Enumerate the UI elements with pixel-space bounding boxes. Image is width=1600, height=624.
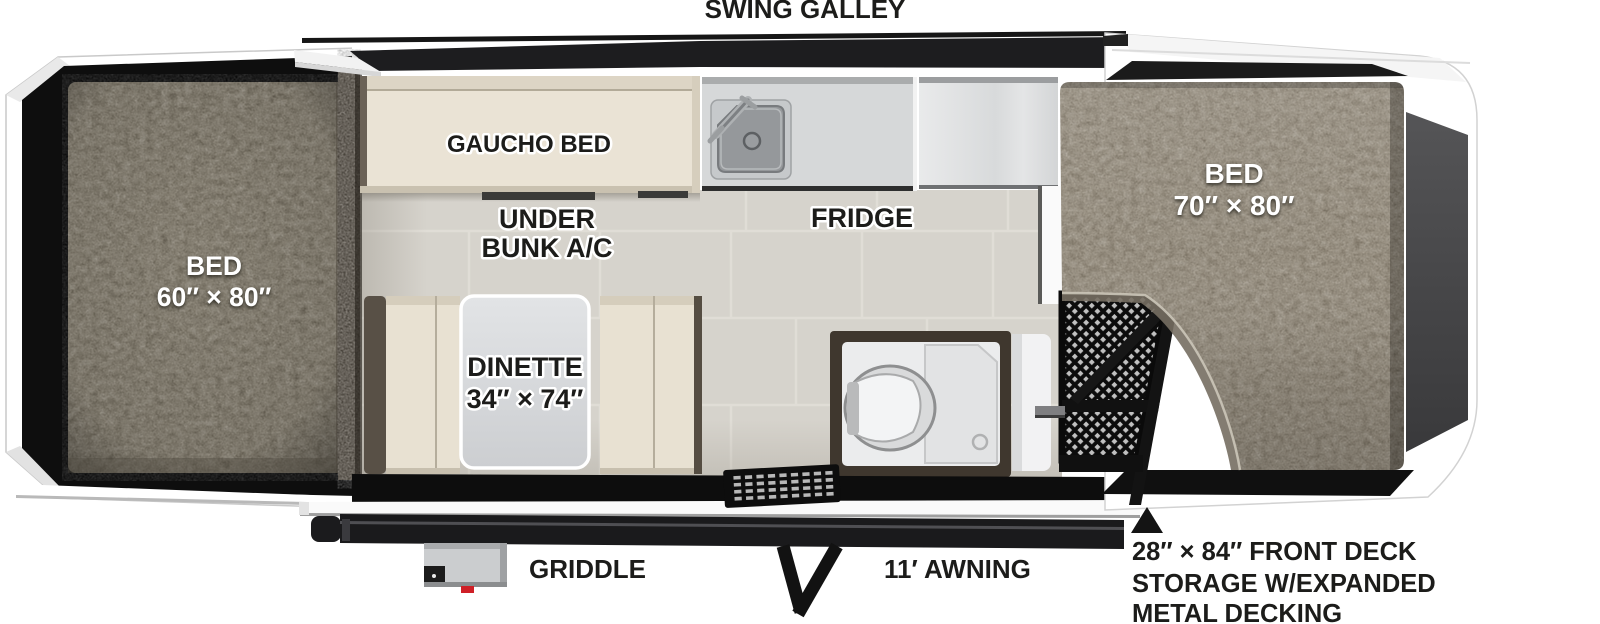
svg-text:70″ × 80″: 70″ × 80″ xyxy=(1173,190,1294,221)
svg-text:28″ × 84″ FRONT DECK: 28″ × 84″ FRONT DECK xyxy=(1132,538,1417,566)
svg-text:SWING GALLEY: SWING GALLEY xyxy=(705,0,906,24)
svg-text:FRIDGE: FRIDGE xyxy=(811,203,913,233)
svg-text:GAUCHO BED: GAUCHO BED xyxy=(447,131,611,158)
svg-text:34″ × 74″: 34″ × 74″ xyxy=(467,384,584,414)
svg-text:UNDER: UNDER xyxy=(499,204,595,234)
svg-text:METAL DECKING: METAL DECKING xyxy=(1132,600,1342,624)
svg-text:BED: BED xyxy=(1204,158,1263,189)
svg-text:BED: BED xyxy=(186,251,242,281)
svg-text:DINETTE: DINETTE xyxy=(467,352,583,382)
svg-text:GRIDDLE: GRIDDLE xyxy=(529,554,646,584)
svg-text:11′ AWNING: 11′ AWNING xyxy=(884,554,1031,584)
svg-text:60″ × 80″: 60″ × 80″ xyxy=(157,282,272,312)
svg-text:BUNK A/C: BUNK A/C xyxy=(482,233,613,263)
svg-text:STORAGE W/EXPANDED: STORAGE W/EXPANDED xyxy=(1132,570,1436,598)
